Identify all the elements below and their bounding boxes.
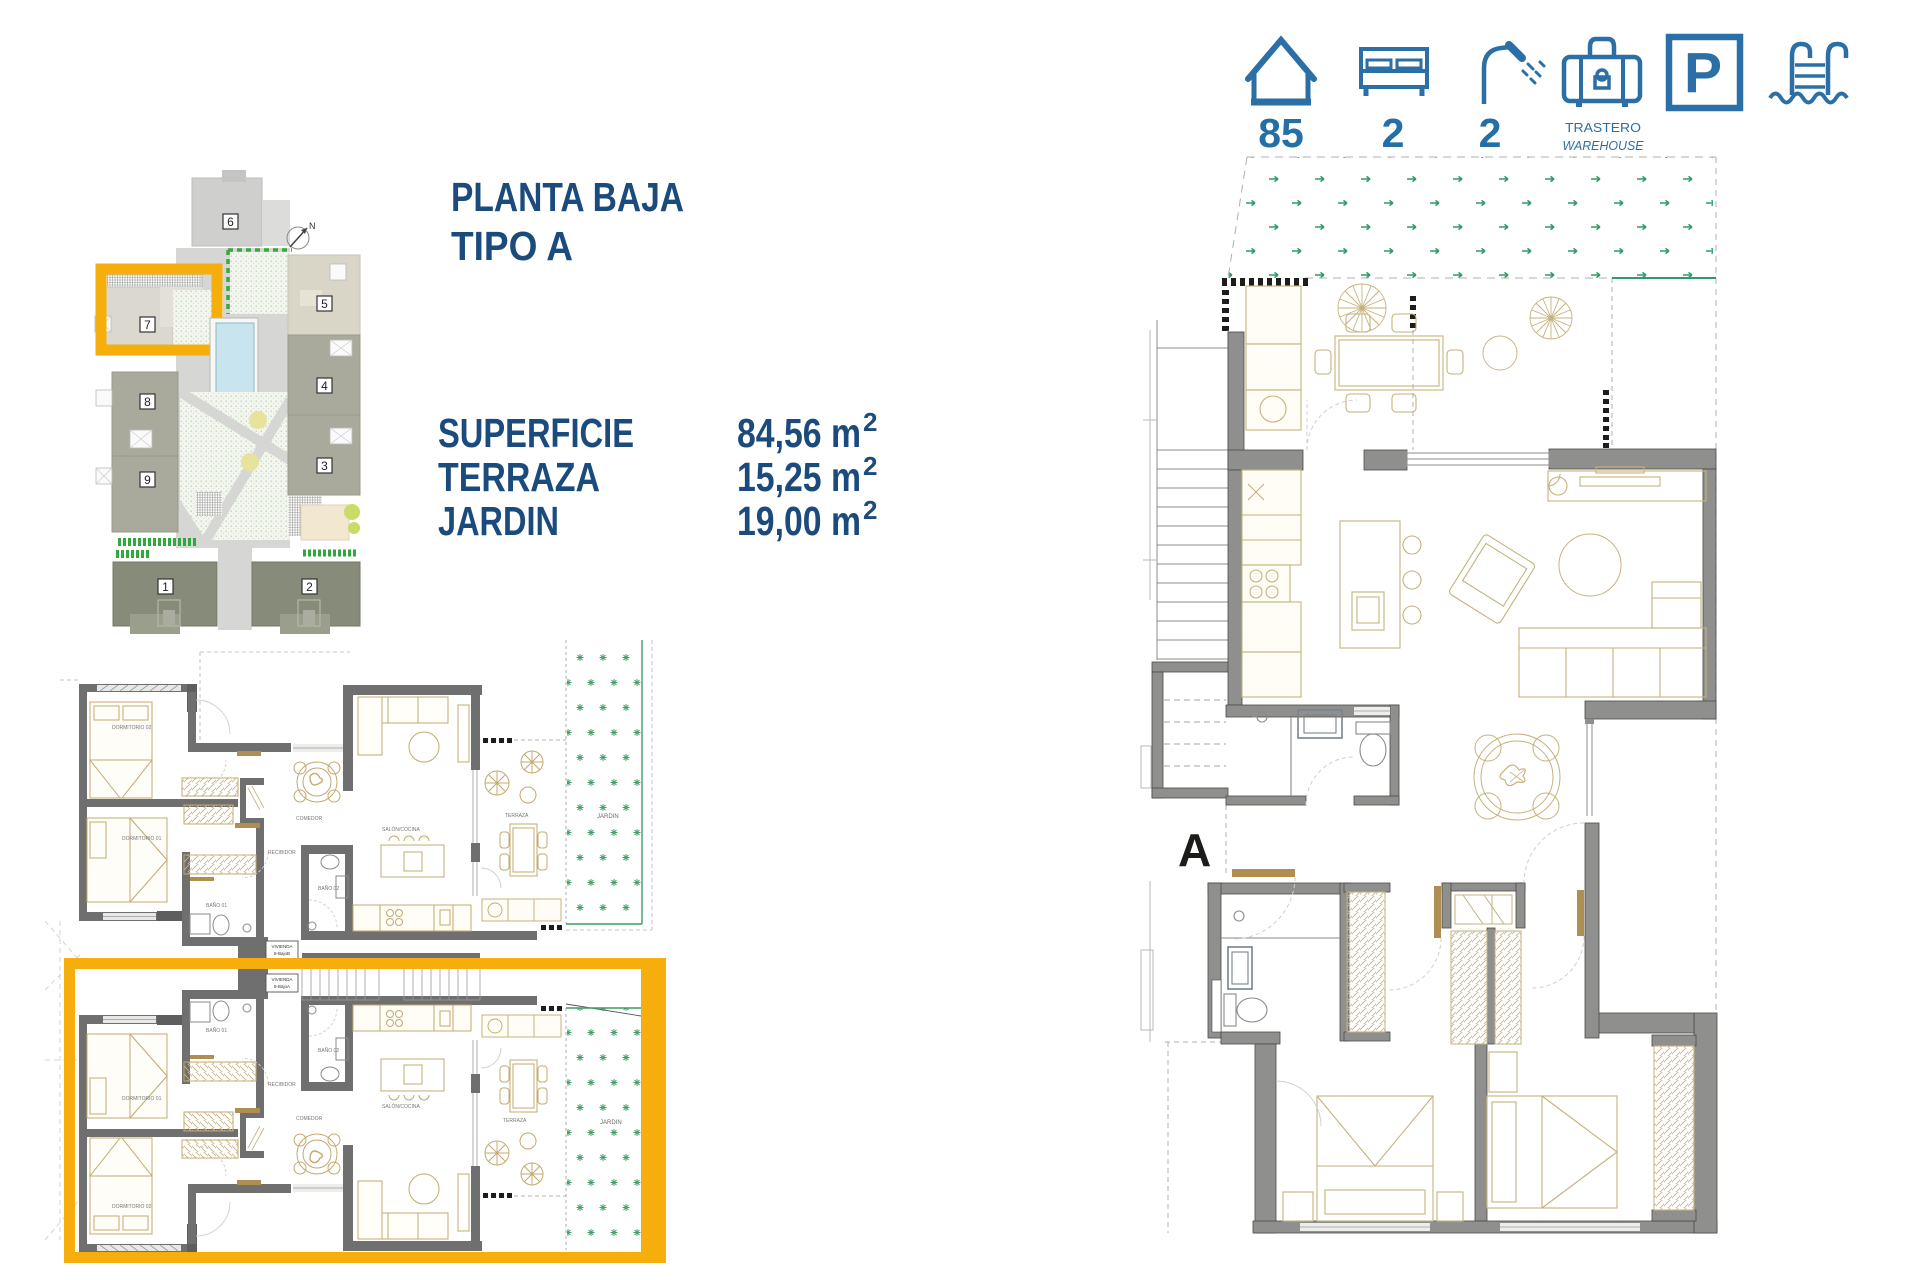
svg-text:SALÓN/COCINA: SALÓN/COCINA <box>382 1103 420 1110</box>
svg-text:SUPERFICIE: SUPERFICIE <box>438 410 634 456</box>
svg-text:VIVIENDA: VIVIENDA <box>271 944 292 949</box>
svg-text:DORMITORIO 01: DORMITORIO 01 <box>122 836 162 842</box>
svg-text:BAÑO 01: BAÑO 01 <box>206 902 227 909</box>
svg-text:84,56 m: 84,56 m <box>737 410 861 456</box>
svg-text:DORMITORIO 01: DORMITORIO 01 <box>122 1096 162 1102</box>
svg-text:9: 9 <box>144 473 151 487</box>
svg-text:A: A <box>1178 824 1211 876</box>
svg-text:N: N <box>309 221 316 231</box>
svg-text:2: 2 <box>306 580 313 594</box>
svg-text:2: 2 <box>1479 110 1502 156</box>
svg-text:TERRAZA: TERRAZA <box>438 454 600 500</box>
svg-text:DORMITORIO 02: DORMITORIO 02 <box>112 1204 152 1210</box>
svg-text:JARDIN: JARDIN <box>438 498 559 544</box>
svg-text:7: 7 <box>144 318 151 332</box>
svg-text:85: 85 <box>1258 110 1304 156</box>
svg-text:BAÑO 02: BAÑO 02 <box>318 1047 339 1054</box>
svg-text:2: 2 <box>863 495 877 525</box>
svg-text:19,00 m: 19,00 m <box>737 498 861 544</box>
svg-text:P: P <box>1684 41 1722 105</box>
svg-text:COMEDOR: COMEDOR <box>296 816 323 822</box>
svg-text:SALÓN/COCINA: SALÓN/COCINA <box>382 826 420 833</box>
svg-text:2: 2 <box>863 407 877 437</box>
svg-text:PLANTA BAJA: PLANTA BAJA <box>451 174 684 220</box>
svg-text:3: 3 <box>321 459 328 473</box>
svg-text:TERRAZA: TERRAZA <box>505 813 529 819</box>
svg-text:WAREHOUSE: WAREHOUSE <box>1563 139 1645 153</box>
svg-text:TRASTERO: TRASTERO <box>1565 121 1641 135</box>
svg-text:DORMITORIO 02: DORMITORIO 02 <box>112 725 152 731</box>
svg-text:RECIBIDOR: RECIBIDOR <box>268 850 296 856</box>
svg-text:JARDIN: JARDIN <box>600 1120 622 1126</box>
svg-text:RECIBIDOR: RECIBIDOR <box>268 1082 296 1088</box>
svg-text:15,25 m: 15,25 m <box>737 454 861 500</box>
svg-text:COMEDOR: COMEDOR <box>296 1116 323 1122</box>
svg-text:TIPO A: TIPO A <box>451 223 573 269</box>
svg-text:8: 8 <box>144 395 151 409</box>
svg-text:BAÑO 01: BAÑO 01 <box>206 1027 227 1034</box>
svg-text:2: 2 <box>863 451 877 481</box>
svg-text:6: 6 <box>227 215 234 229</box>
svg-text:JARDIN: JARDIN <box>597 814 619 820</box>
svg-text:TERRAZA: TERRAZA <box>503 1118 527 1124</box>
svg-text:1: 1 <box>162 580 169 594</box>
svg-text:8-BajoA: 8-BajoA <box>274 984 290 989</box>
svg-text:8-BajoB: 8-BajoB <box>274 951 290 956</box>
svg-text:2: 2 <box>1382 110 1405 156</box>
svg-text:BAÑO 02: BAÑO 02 <box>318 885 339 892</box>
svg-text:5: 5 <box>321 297 328 311</box>
svg-text:VIVIENDA: VIVIENDA <box>271 977 292 982</box>
svg-text:4: 4 <box>321 379 328 393</box>
